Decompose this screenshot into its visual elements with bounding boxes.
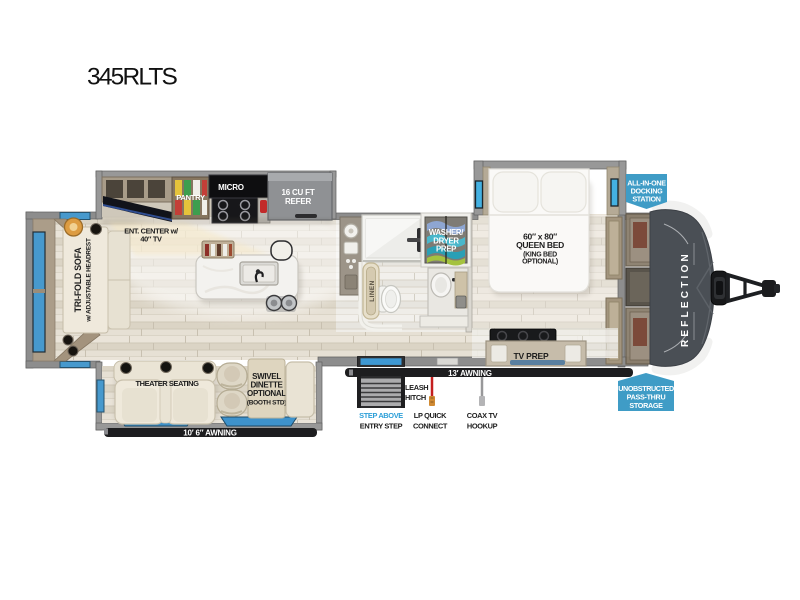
- svg-text:LINEN: LINEN: [369, 280, 376, 302]
- svg-text:16 CU FT: 16 CU FT: [281, 188, 314, 197]
- svg-text:QUEEN BED: QUEEN BED: [516, 240, 564, 250]
- svg-text:OPTIONAL: OPTIONAL: [247, 389, 286, 398]
- svg-text:(BOOTH STD): (BOOTH STD): [247, 400, 286, 407]
- svg-text:REFLECTION: REFLECTION: [680, 251, 691, 347]
- svg-text:MICRO: MICRO: [218, 183, 244, 192]
- svg-text:COAX TV: COAX TV: [467, 411, 498, 420]
- svg-text:345RLTS: 345RLTS: [87, 64, 178, 91]
- svg-text:13′ AWNING: 13′ AWNING: [448, 369, 492, 378]
- svg-text:PANTRY: PANTRY: [176, 193, 205, 202]
- svg-text:ENTRY STEP: ENTRY STEP: [360, 422, 403, 431]
- svg-text:(KING BED: (KING BED: [523, 252, 557, 259]
- svg-text:PREP: PREP: [436, 245, 456, 254]
- svg-text:OPTIONAL): OPTIONAL): [522, 259, 558, 266]
- svg-text:40″ TV: 40″ TV: [140, 235, 162, 244]
- svg-text:TRI-FOLD SOFA: TRI-FOLD SOFA: [73, 247, 83, 313]
- svg-text:HITCH: HITCH: [405, 393, 426, 402]
- svg-text:CONNECT: CONNECT: [413, 422, 448, 431]
- svg-text:THEATER SEATING: THEATER SEATING: [136, 379, 200, 388]
- svg-text:LEASH: LEASH: [405, 383, 428, 392]
- svg-text:STATION: STATION: [632, 195, 660, 204]
- svg-text:LP QUICK: LP QUICK: [414, 411, 447, 420]
- svg-text:STEP ABOVE: STEP ABOVE: [359, 411, 403, 420]
- svg-text:REFER: REFER: [285, 197, 312, 206]
- svg-text:STORAGE: STORAGE: [629, 401, 663, 410]
- svg-text:TV PREP: TV PREP: [514, 351, 550, 361]
- svg-text:HOOKUP: HOOKUP: [467, 422, 498, 431]
- svg-text:w/ ADJUSTABLE HEADREST: w/ ADJUSTABLE HEADREST: [86, 238, 93, 323]
- svg-text:10′ 6″ AWNING: 10′ 6″ AWNING: [183, 429, 237, 438]
